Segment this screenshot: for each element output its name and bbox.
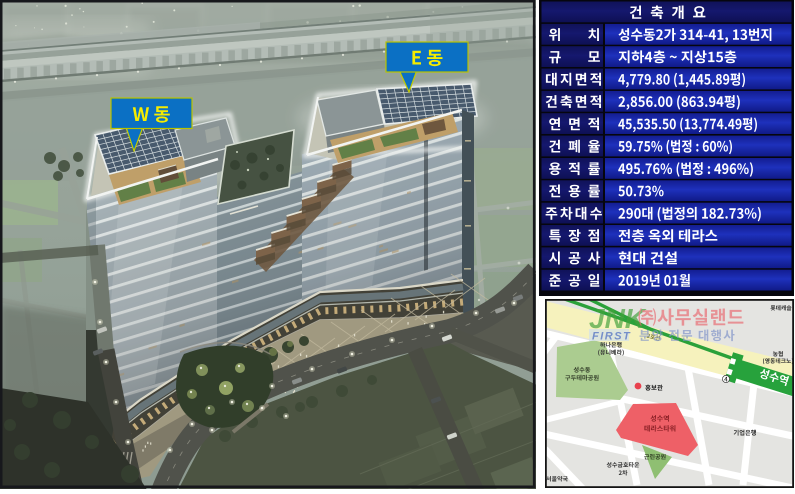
svg-text:FIRST: FIRST xyxy=(592,331,631,343)
